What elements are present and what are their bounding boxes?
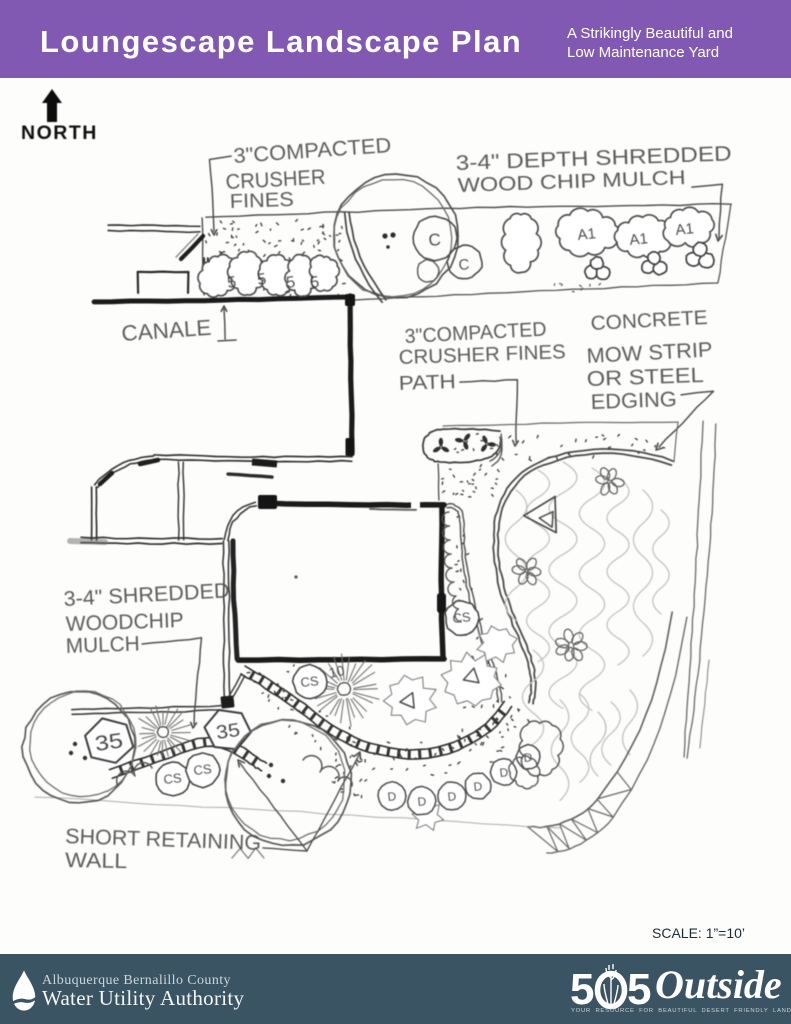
svg-text:SCALE: 1”=10’: SCALE: 1”=10’ <box>652 925 745 941</box>
svg-text:Outside: Outside <box>655 962 782 1007</box>
svg-text:A Strikingly Beautiful and: A Strikingly Beautiful and <box>567 25 733 42</box>
svg-text:Water Utility Authority: Water Utility Authority <box>42 986 245 1010</box>
svg-text:YOUR RESOURCE FOR BEAUTIFUL DE: YOUR RESOURCE FOR BEAUTIFUL DESERT FRIEN… <box>571 1008 791 1014</box>
svg-text:Low Maintenance Yard: Low Maintenance Yard <box>567 44 719 61</box>
svg-text:Loungescape Landscape Plan: Loungescape Landscape Plan <box>40 24 522 59</box>
svg-text:505: 505 <box>570 965 655 1014</box>
